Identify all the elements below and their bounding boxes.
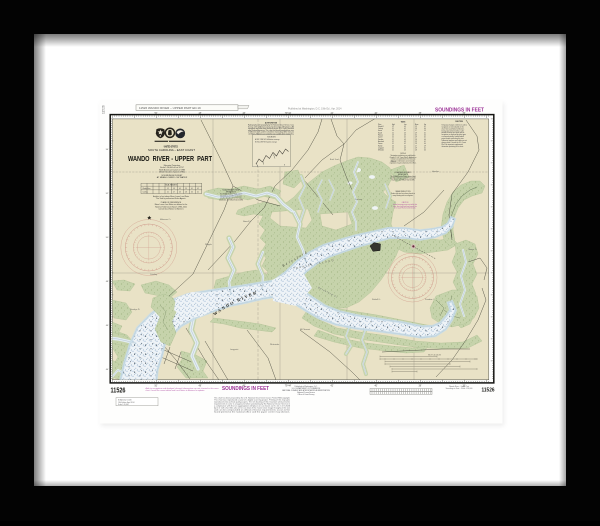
svg-text:Whitesides: Whitesides: [270, 343, 279, 346]
svg-text:6.0: 6.0: [424, 150, 426, 152]
svg-text:6.1: 6.1: [424, 137, 426, 139]
svg-text:Mt Pleasant: Mt Pleasant: [300, 328, 310, 331]
svg-text:6.0: 6.0: [424, 139, 426, 141]
svg-text:SOUNDINGS IN FEET: SOUNDINGS IN FEET: [435, 107, 484, 113]
svg-text:11526: 11526: [102, 105, 106, 114]
svg-text:5.0: 5.0: [392, 130, 394, 132]
svg-text:AUTHORITIES: AUTHORITIES: [265, 121, 278, 124]
svg-text:0.2: 0.2: [404, 137, 406, 139]
svg-text:2.8: 2.8: [415, 128, 417, 130]
svg-text:11526: 11526: [111, 386, 126, 395]
svg-text:Cainhoy: Cainhoy: [150, 274, 157, 276]
svg-text:0.1: 0.1: [197, 192, 199, 194]
svg-text:2.9: 2.9: [415, 126, 417, 128]
svg-text:2.9: 2.9: [185, 188, 187, 190]
svg-text:5.2: 5.2: [392, 137, 394, 139]
svg-text:Office of Coast Survey: Office of Coast Survey: [298, 393, 315, 396]
svg-text:Wando R: Wando R: [378, 126, 384, 128]
svg-text:B: B: [284, 165, 285, 167]
svg-text:2.8: 2.8: [415, 143, 417, 145]
svg-text:Cainhoy: Cainhoy: [378, 128, 383, 130]
svg-text:6.1: 6.1: [424, 147, 426, 149]
svg-text:Cainhoy: Cainhoy: [143, 192, 148, 194]
svg-text:SOUNDINGS IN FEET: SOUNDINGS IN FEET: [222, 386, 269, 392]
svg-text:High: High: [392, 124, 395, 126]
svg-text:Mean: Mean: [415, 124, 419, 126]
svg-text:TIDES: TIDES: [401, 122, 406, 124]
svg-text:2.9: 2.9: [415, 141, 417, 143]
svg-text:chart. Consult the current edi: chart. Consult the current edition and L…: [146, 389, 206, 392]
svg-text:CAUTION: CAUTION: [455, 120, 463, 123]
svg-text:2.8: 2.8: [185, 192, 187, 194]
svg-text:5.9: 5.9: [424, 130, 426, 132]
svg-text:Brick Yard: Brick Yard: [330, 158, 339, 161]
svg-text:2.7: 2.7: [415, 145, 417, 147]
svg-text:Wando River: Wando River: [143, 188, 152, 190]
svg-text:5.2: 5.2: [392, 141, 394, 143]
svg-text:5.1: 5.1: [167, 192, 169, 194]
svg-text:For Sale by authorized Sales A: For Sale by authorized Sales Agents: [156, 197, 185, 200]
svg-text:11526: 11526: [482, 387, 496, 393]
svg-text:2.9: 2.9: [415, 132, 417, 134]
svg-text:5.3: 5.3: [392, 135, 394, 137]
svg-text:5.1: 5.1: [392, 150, 394, 152]
svg-text:0.3: 0.3: [404, 139, 406, 141]
svg-text:2.9: 2.9: [415, 137, 417, 139]
svg-text:Hamlins: Hamlins: [432, 171, 439, 173]
svg-text:Rathall Cr: Rathall Cr: [372, 298, 381, 301]
svg-text:Paradise I: Paradise I: [425, 298, 434, 301]
svg-text:2.9: 2.9: [415, 147, 417, 149]
svg-text:5.2: 5.2: [392, 126, 394, 128]
svg-text:0.2: 0.2: [404, 143, 406, 145]
svg-text:0.3: 0.3: [179, 188, 181, 190]
svg-text:0.3: 0.3: [404, 132, 406, 134]
svg-text:5.2: 5.2: [167, 188, 169, 190]
svg-text:0.3: 0.3: [179, 192, 181, 194]
svg-text:Toomer Cr: Toomer Cr: [468, 248, 477, 251]
svg-text:6.1: 6.1: [191, 188, 193, 190]
svg-text:Soundings in Feet – Scale 1:20: Soundings in Feet – Scale 1:20,000: [446, 387, 473, 390]
svg-text:Low: Low: [404, 124, 406, 126]
svg-text:Nowell Cr: Nowell Cr: [243, 220, 252, 223]
svg-text:6.2: 6.2: [424, 135, 426, 137]
svg-text:5.2: 5.2: [392, 147, 394, 149]
svg-text:0.2: 0.2: [197, 188, 199, 190]
svg-text:0.3: 0.3: [404, 147, 406, 149]
svg-text:Nowell: Nowell: [378, 132, 383, 134]
svg-text:Remleys Pt: Remleys Pt: [130, 308, 140, 311]
svg-text:Published at Washington, D.C.: Published at Washington, D.C. 19th Ed., …: [288, 108, 342, 111]
svg-text:Cochran: Cochran: [355, 198, 362, 201]
svg-text:SOURCES: SOURCES: [267, 136, 276, 138]
svg-text:6.0: 6.0: [424, 143, 426, 145]
svg-text:6.0: 6.0: [191, 192, 193, 194]
svg-text:5.1: 5.1: [392, 143, 394, 145]
svg-text:Hobcaw: Hobcaw: [378, 135, 383, 137]
svg-text:5.0: 5.0: [392, 145, 394, 147]
svg-text:5.8: 5.8: [173, 188, 175, 190]
svg-text:5.1: 5.1: [392, 128, 394, 130]
svg-text:AT MEAN LOWER LOW WATER: AT MEAN LOWER LOW WATER: [157, 176, 188, 179]
svg-text:79°44': 79°44': [285, 386, 292, 388]
svg-text:0.2: 0.2: [404, 130, 406, 132]
svg-text:5.9: 5.9: [424, 145, 426, 147]
svg-text:0.3: 0.3: [404, 126, 406, 128]
svg-text:2.7: 2.7: [415, 130, 417, 132]
svg-text:79°44': 79°44': [285, 113, 292, 115]
svg-text:Whipple: Whipple: [205, 244, 212, 246]
svg-text:11526 WANDO RIVER – UPPER PAR: 11526 WANDO RIVER – UPPER PART ED.19: [139, 106, 201, 110]
svg-text:0.2: 0.2: [404, 145, 406, 147]
svg-text:5.7: 5.7: [173, 192, 175, 194]
svg-text:3.0: 3.0: [415, 135, 417, 137]
svg-text:Scale 1:20,000: Scale 1:20,000: [118, 404, 129, 406]
svg-text:WANDO RIVER - UPPER PART: WANDO RIVER - UPPER PART: [128, 156, 213, 163]
svg-text:Consult local Notice to Marine: Consult local Notice to Mariners: [158, 208, 183, 211]
svg-text:6.1: 6.1: [424, 126, 426, 128]
svg-text:6.1: 6.1: [424, 141, 426, 143]
svg-text:Molasses Cr: Molasses Cr: [160, 218, 171, 221]
svg-text:Longpoint: Longpoint: [230, 348, 239, 351]
svg-text:0.3: 0.3: [404, 150, 406, 152]
svg-text:(World Geodetic System 1984): (World Geodetic System 1984): [159, 171, 185, 174]
svg-text:2.8: 2.8: [415, 139, 417, 141]
svg-text:0.2: 0.2: [404, 128, 406, 130]
svg-text:2.8: 2.8: [415, 150, 417, 152]
svg-text:6.0: 6.0: [424, 128, 426, 130]
svg-text:5.1: 5.1: [392, 139, 394, 141]
svg-text:Place: Place: [378, 124, 382, 126]
svg-text:6.1: 6.1: [424, 132, 426, 134]
svg-text:0.3: 0.3: [404, 141, 406, 143]
svg-text:0.3: 0.3: [404, 135, 406, 137]
svg-text:Daniel I: Daniel I: [378, 137, 383, 139]
svg-text:SOUTH CAROLINA – EAST COAST: SOUTH CAROLINA – EAST COAST: [148, 148, 195, 152]
svg-text:5.2: 5.2: [392, 132, 394, 134]
